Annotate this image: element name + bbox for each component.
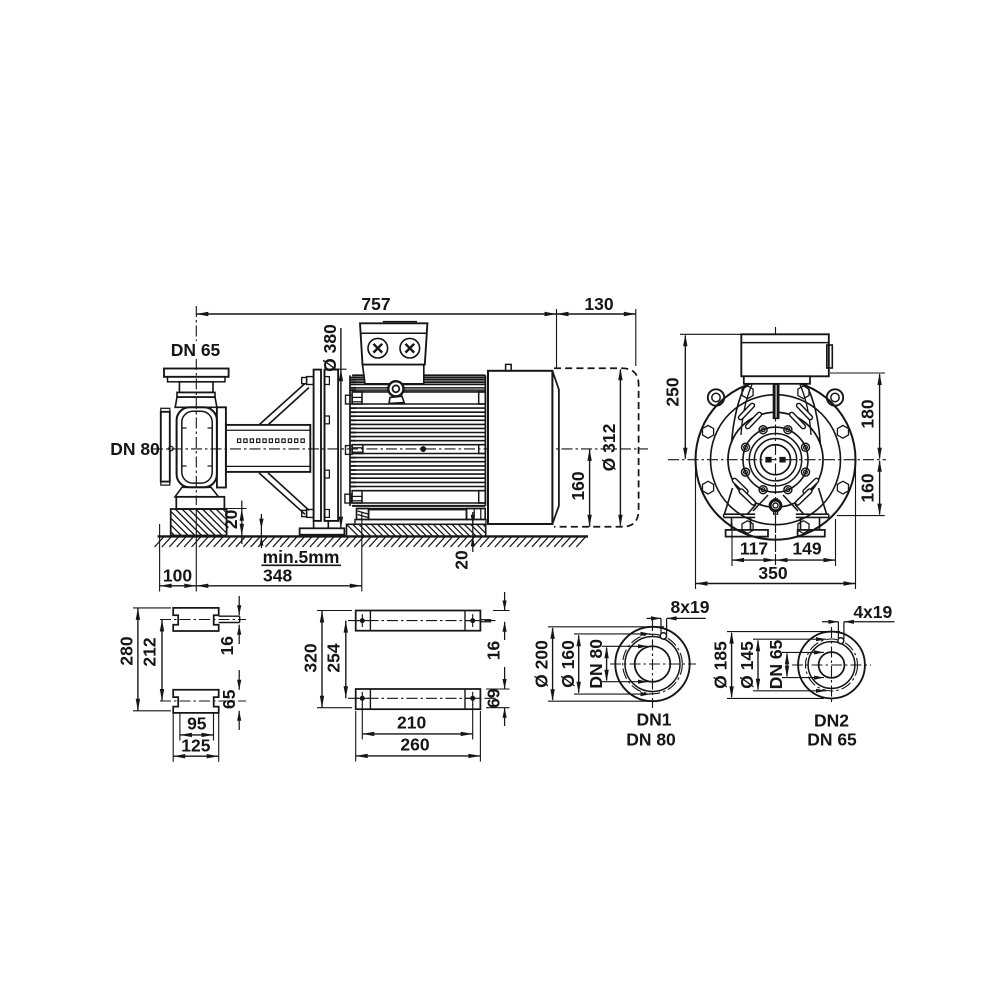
svg-text:4x19: 4x19 (853, 602, 892, 622)
svg-text:757: 757 (361, 294, 390, 314)
svg-text:250: 250 (663, 377, 683, 406)
svg-text:DN1: DN1 (636, 710, 671, 730)
svg-text:DN 65: DN 65 (807, 730, 857, 750)
svg-text:Ø 160: Ø 160 (558, 640, 578, 688)
svg-text:350: 350 (758, 563, 787, 583)
svg-text:100: 100 (163, 565, 192, 585)
svg-text:69: 69 (484, 688, 504, 708)
svg-text:260: 260 (400, 735, 429, 755)
svg-text:149: 149 (792, 538, 821, 558)
svg-text:DN 65: DN 65 (171, 340, 221, 360)
svg-text:Ø 200: Ø 200 (532, 640, 552, 688)
svg-text:65: 65 (219, 689, 239, 709)
svg-text:320: 320 (300, 643, 320, 672)
svg-text:210: 210 (397, 713, 426, 733)
svg-text:160: 160 (858, 473, 878, 502)
svg-text:212: 212 (139, 637, 159, 666)
svg-text:20: 20 (452, 550, 472, 570)
svg-text:125: 125 (181, 735, 210, 755)
svg-text:Ø 185: Ø 185 (711, 641, 731, 689)
svg-text:Ø 145: Ø 145 (737, 641, 757, 689)
svg-text:280: 280 (116, 636, 136, 665)
svg-text:DN 80: DN 80 (110, 439, 160, 459)
svg-text:20: 20 (221, 509, 241, 529)
svg-text:Ø 312: Ø 312 (599, 423, 619, 471)
svg-text:Ø 380: Ø 380 (320, 324, 340, 372)
svg-text:130: 130 (584, 294, 613, 314)
svg-text:16: 16 (484, 641, 504, 661)
svg-text:95: 95 (187, 713, 207, 733)
svg-text:160: 160 (568, 471, 588, 500)
svg-text:DN 65: DN 65 (766, 639, 786, 689)
svg-text:min.5mm: min.5mm (263, 547, 340, 567)
svg-text:16: 16 (217, 636, 237, 656)
svg-text:8x19: 8x19 (671, 597, 710, 617)
svg-text:117: 117 (740, 538, 768, 558)
svg-text:254: 254 (324, 643, 344, 672)
svg-text:DN2: DN2 (814, 711, 849, 731)
svg-text:348: 348 (263, 565, 292, 585)
svg-text:180: 180 (858, 399, 878, 428)
svg-text:DN 80: DN 80 (626, 730, 676, 750)
